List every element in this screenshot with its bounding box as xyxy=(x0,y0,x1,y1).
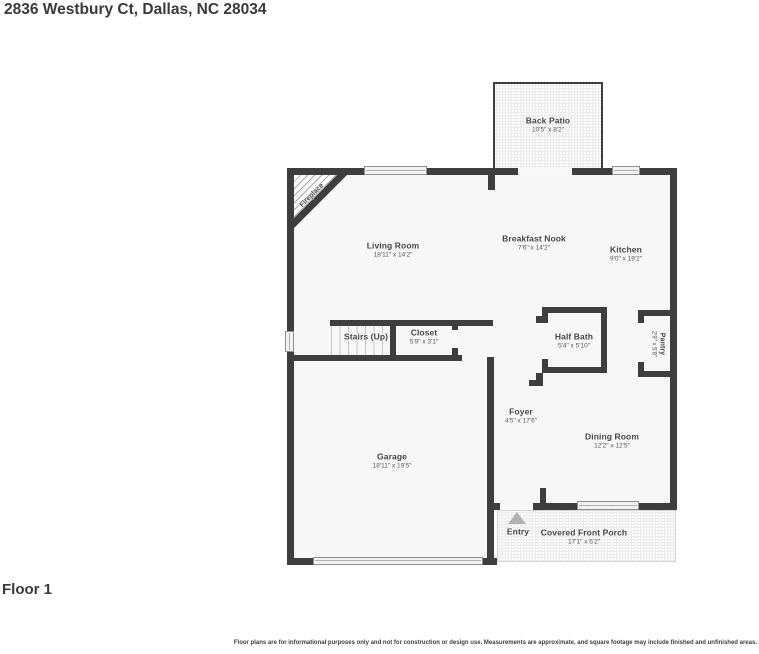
room-label-breakfast-nook: Breakfast Nook 7'6" x 14'2" xyxy=(502,233,566,252)
wall-foyer-stub-foot xyxy=(529,380,543,386)
room-dims: 5'9" x 3'1" xyxy=(410,338,438,346)
wall-foyer-garage xyxy=(487,357,494,565)
room-dims: 7'6" x 14'2" xyxy=(502,244,566,252)
room-name: Breakfast Nook xyxy=(502,233,566,244)
wall-pantry-left-upper xyxy=(638,310,644,323)
room-name: Garage xyxy=(373,451,412,462)
wall-living-nook-stub xyxy=(488,168,495,190)
entry-door-opening xyxy=(500,503,533,510)
floor-plan: Back Patio 10'5" x 8'2" Living Room 18'1… xyxy=(0,0,759,654)
room-name: Closet xyxy=(410,327,438,338)
wall-garage-top xyxy=(287,355,462,361)
room-dims: 2'9" x 5'8" xyxy=(649,331,657,357)
room-dims: 4'5" x 17'6" xyxy=(505,417,537,425)
room-label-entry: Entry xyxy=(507,527,529,538)
room-label-stairs: Stairs (Up) xyxy=(344,332,388,343)
room-name: Entry xyxy=(507,527,529,538)
room-label-back-patio: Back Patio 10'5" x 8'2" xyxy=(526,115,570,134)
window-kitchen xyxy=(612,166,640,175)
room-name: Covered Front Porch xyxy=(541,527,627,538)
wall-halfbath-left-lower xyxy=(542,359,548,373)
disclaimer-text: Floor plans are for informational purpos… xyxy=(234,640,757,646)
closet-door-opening xyxy=(452,330,458,348)
wall-halfbath-right xyxy=(601,307,607,373)
room-dims: 12'2" x 12'5" xyxy=(585,442,639,450)
room-name: Dining Room xyxy=(585,431,639,442)
garage-floor-fill xyxy=(287,505,494,565)
room-dims: 18'11" x 14'2" xyxy=(367,251,420,259)
room-name: Half Bath xyxy=(555,331,593,342)
window-left-wall xyxy=(285,331,294,352)
window-front-wall xyxy=(577,501,639,510)
wall-halfbath-bottom xyxy=(542,367,607,373)
wall-halfbath-door-jamb xyxy=(536,316,542,323)
window-living-room xyxy=(364,166,427,175)
room-name: Pantry xyxy=(657,331,666,357)
wall-halfbath-top xyxy=(542,307,607,313)
room-name: Foyer xyxy=(505,406,537,417)
wall-pantry-bottom xyxy=(638,371,677,377)
wall-right xyxy=(670,168,677,510)
room-name: Living Room xyxy=(367,240,420,251)
room-label-closet: Closet 5'9" x 3'1" xyxy=(410,327,438,346)
room-name: Back Patio xyxy=(526,115,570,126)
room-label-foyer: Foyer 4'5" x 17'6" xyxy=(505,406,537,425)
room-dims: 18'11" x 19'5" xyxy=(373,462,412,470)
room-dims: 5'4" x 5'10" xyxy=(555,342,593,350)
wall-halfbath-left-upper xyxy=(542,307,548,323)
room-name: Stairs (Up) xyxy=(344,332,388,343)
room-label-front-porch: Covered Front Porch 17'1" x 5'2" xyxy=(541,527,627,546)
room-label-dining-room: Dining Room 12'2" x 12'5" xyxy=(585,431,639,450)
room-label-kitchen: Kitchen 9'0" x 19'2" xyxy=(610,244,642,263)
room-dims: 17'1" x 5'2" xyxy=(541,538,627,546)
floor-plan-sheet: 2836 Westbury Ct, Dallas, NC 28034 xyxy=(0,0,759,654)
wall-dining-foyer-stub xyxy=(540,488,546,505)
room-label-living-room: Living Room 18'11" x 14'2" xyxy=(367,240,420,259)
wall-stairs-closet xyxy=(390,320,396,361)
wall-left xyxy=(287,168,294,565)
room-dims: 10'5" x 8'2" xyxy=(526,126,570,134)
patio-door-opening xyxy=(518,168,572,175)
floor-label: Floor 1 xyxy=(2,581,52,598)
room-name: Kitchen xyxy=(610,244,642,255)
room-dims: 9'0" x 19'2" xyxy=(610,255,642,263)
entry-arrow-icon xyxy=(508,512,526,524)
garage-door xyxy=(313,557,483,565)
room-label-half-bath: Half Bath 5'4" x 5'10" xyxy=(555,331,593,350)
room-label-pantry: Pantry 2'9" x 5'8" xyxy=(649,331,666,357)
room-label-garage: Garage 18'11" x 19'5" xyxy=(373,451,412,470)
